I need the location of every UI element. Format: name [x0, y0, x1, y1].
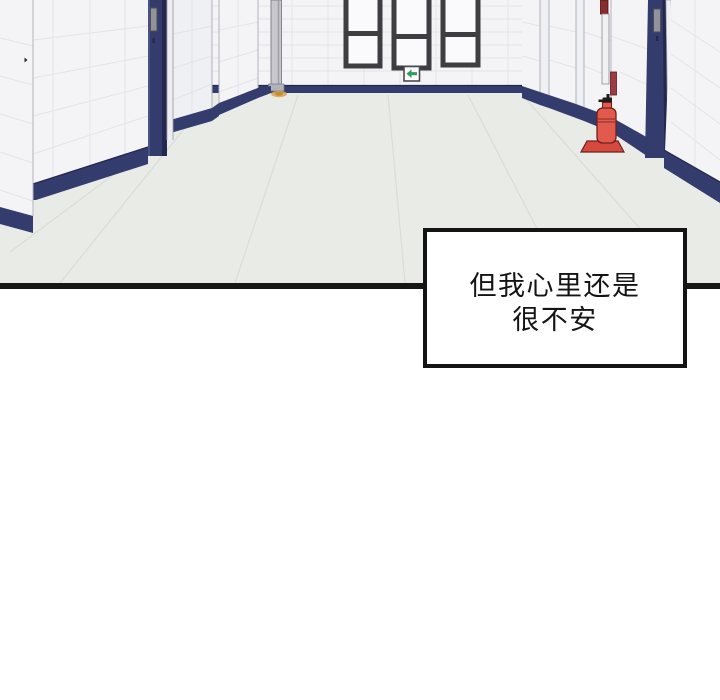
door-hinge-icon — [654, 9, 661, 32]
caption-box: 但我心里还是 很不安 — [423, 228, 687, 368]
right-pillar-2 — [549, 0, 576, 104]
right-recess-2 — [576, 0, 584, 107]
right-pillar-1 — [522, 0, 540, 92]
window-right — [443, 0, 478, 65]
door-latch — [153, 38, 155, 43]
caption-line-2: 很不安 — [512, 305, 598, 335]
door-hinge-icon — [151, 8, 158, 31]
window-center — [394, 0, 429, 68]
door-latch — [656, 36, 658, 41]
right-recess-2-baseboard — [576, 104, 584, 121]
caption-line-1: 但我心里还是 — [470, 271, 641, 301]
door-frame-right — [645, 0, 669, 158]
door-frame-left — [148, 0, 167, 156]
right-recess-1 — [540, 0, 549, 95]
left-front-pillar — [0, 0, 33, 216]
window-left — [346, 0, 380, 66]
exit-sign-left-arrow-icon — [404, 67, 420, 82]
door-edge-left — [167, 0, 173, 140]
comic-page: 但我心里还是 很不安 — [0, 0, 720, 700]
right-near-wall — [611, 0, 650, 139]
